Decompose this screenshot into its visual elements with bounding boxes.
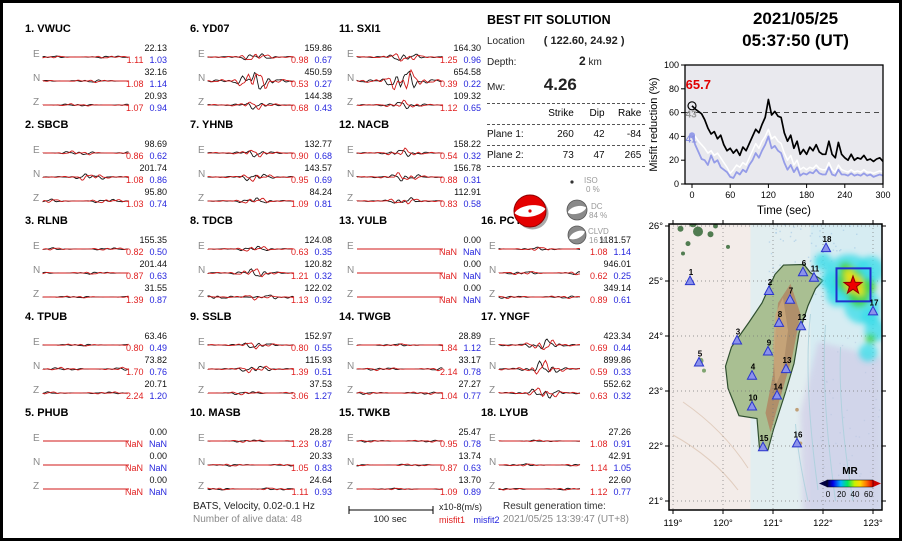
misfit1-value: 0.53 xyxy=(291,79,309,89)
misfit2-value: 0.89 xyxy=(463,487,481,497)
channel-label: N xyxy=(347,169,354,180)
misfit2-value: 0.58 xyxy=(463,199,481,209)
map-station-number: 16 xyxy=(794,430,803,439)
waveform-trace xyxy=(208,70,294,92)
waveform-trace xyxy=(208,94,294,116)
misfit1-value: NaN xyxy=(439,247,457,257)
waveform-row: E63.460.800.49 xyxy=(25,334,167,356)
map-station-number: 11 xyxy=(811,265,820,274)
chart-annotation: 41 xyxy=(686,134,698,145)
x-tick-label: 180 xyxy=(799,190,814,200)
misfit-values: 0.870.63 xyxy=(440,463,481,473)
channel-label: Z xyxy=(347,97,353,108)
waveform-trace xyxy=(357,478,443,500)
misfit2-value: 0.22 xyxy=(463,79,481,89)
dip-header: Dip xyxy=(577,108,605,119)
misfit-values: 0.860.62 xyxy=(126,151,167,161)
sea-speckle xyxy=(854,247,855,248)
sea-speckle xyxy=(812,226,813,227)
observed-trace xyxy=(208,246,294,250)
misfit-values: 0.630.35 xyxy=(291,247,332,257)
synthetic-trace xyxy=(208,343,294,349)
waveform-trace xyxy=(43,190,129,212)
sea-speckle xyxy=(837,351,838,352)
map-station-number: 4 xyxy=(751,363,756,372)
colorbar-tick-label: 20 xyxy=(837,490,846,499)
misfit-values: 0.950.78 xyxy=(440,439,481,449)
misfit1-value: 1.09 xyxy=(291,199,309,209)
misfit2-value: 0.81 xyxy=(314,199,332,209)
misfit-values: 1.390.51 xyxy=(291,367,332,377)
misfit-values: NaNNaN xyxy=(125,463,167,473)
misfit-values: NaNNaN xyxy=(439,247,481,257)
misfit2-value: 0.96 xyxy=(463,55,481,65)
amplitude-unit-label: x10-8(m/s) xyxy=(439,502,482,512)
waveform-row: N899.860.590.33 xyxy=(481,358,631,380)
misfit-values: 1.390.87 xyxy=(126,295,167,305)
plane1-strike: 260 xyxy=(542,129,574,140)
event-date: 2021/05/25 xyxy=(693,9,898,29)
synthetic-trace xyxy=(43,104,129,106)
map-x-tick-label: 123° xyxy=(863,518,883,529)
misfit2-value: NaN xyxy=(463,247,481,257)
waveform-row: Z112.910.830.58 xyxy=(339,190,481,212)
misfit-values: 1.230.87 xyxy=(291,439,332,449)
map-station-number: 13 xyxy=(783,356,792,365)
map-station-number: 8 xyxy=(778,310,783,319)
misfit1-value: 1.70 xyxy=(126,367,144,377)
colorbar-tick-label: 40 xyxy=(851,490,860,499)
observed-trace xyxy=(499,339,580,349)
amplitude-value: 132.77 xyxy=(304,139,332,149)
waveform-row: Z0.00NaNNaN xyxy=(339,286,481,308)
waveform-row: E98.690.860.62 xyxy=(25,142,167,164)
amplitude-value: 33.17 xyxy=(458,355,481,365)
divider xyxy=(487,165,645,167)
misfit2-value: 0.32 xyxy=(463,151,481,161)
map-station-number: 5 xyxy=(698,349,703,358)
waveform-row: E132.770.900.68 xyxy=(190,142,332,164)
waveform-trace xyxy=(499,478,581,500)
taiwan-station-map: 123456789101112131415161718MR0204060119°… xyxy=(643,217,902,535)
misfit1-value: 1.13 xyxy=(291,295,309,305)
misfit2-value: 0.87 xyxy=(314,439,332,449)
sea-speckle xyxy=(835,443,836,444)
waveform-trace xyxy=(208,142,294,164)
x-tick-label: 300 xyxy=(875,190,890,200)
sea-speckle xyxy=(849,428,850,429)
misfit2-value: 1.05 xyxy=(613,463,631,473)
misfit1-value: 1.84 xyxy=(440,343,458,353)
observed-trace xyxy=(208,198,294,203)
amplitude-value: 109.32 xyxy=(453,91,481,101)
channel-label: Z xyxy=(198,289,204,300)
amplitude-value: 22.13 xyxy=(144,43,167,53)
alive-data-count: Number of alive data: 48 xyxy=(193,514,302,525)
waveform-trace xyxy=(208,454,294,476)
waveform-trace xyxy=(357,334,443,356)
waveform-trace xyxy=(357,238,443,260)
amplitude-value: 155.35 xyxy=(139,235,167,245)
misfit-legend: misfit1 misfit2 xyxy=(439,515,500,525)
dc-icon xyxy=(567,200,587,220)
channel-label: Z xyxy=(347,385,353,396)
sea-speckle xyxy=(859,436,860,437)
time-scale-label: 100 sec xyxy=(347,514,433,525)
misfit1-value: 0.95 xyxy=(291,175,309,185)
sea-speckle xyxy=(775,232,776,233)
synthetic-trace xyxy=(499,271,580,274)
misfit-values: 1.130.92 xyxy=(291,295,332,305)
depth-unit: km xyxy=(588,57,601,68)
waveform-row: E0.00NaNNaN xyxy=(25,430,167,452)
channel-label: N xyxy=(198,169,205,180)
sea-speckle xyxy=(856,234,857,235)
map-station-number: 3 xyxy=(736,327,741,336)
waveform-row: E28.281.230.87 xyxy=(190,430,332,452)
map-station-number: 17 xyxy=(870,298,879,307)
x-tick-label: 120 xyxy=(761,190,776,200)
sea-speckle xyxy=(855,436,856,437)
misfit-values: 0.530.27 xyxy=(291,79,332,89)
synthetic-trace xyxy=(357,100,443,107)
waveform-row: Z20.712.241.20 xyxy=(25,382,167,404)
misfit-values: 0.690.44 xyxy=(590,343,631,353)
depth-row: Depth: 2 km xyxy=(487,54,645,68)
misfit2-value: 0.68 xyxy=(314,151,332,161)
event-datetime: 2021/05/25 05:37:50 (UT) xyxy=(693,9,898,51)
channel-label: Z xyxy=(198,385,204,396)
channel-label: N xyxy=(347,73,354,84)
channel-label: E xyxy=(33,241,40,252)
focal-mechanism-graphics: ISO 0 % DC 84 % CLVD 16 % xyxy=(487,171,645,263)
sea-speckle xyxy=(780,239,781,240)
amplitude-value: 31.55 xyxy=(144,283,167,293)
map-y-tick-label: 21° xyxy=(649,496,664,507)
misfit-values: 0.950.69 xyxy=(291,175,332,185)
waveform-row: N33.172.140.78 xyxy=(339,358,481,380)
misfit-values: 1.120.65 xyxy=(440,103,481,113)
channel-label: Z xyxy=(489,385,495,396)
channel-label: N xyxy=(33,457,40,468)
station-header: 7. YHNB xyxy=(190,119,233,131)
misfit2-value: 0.62 xyxy=(149,151,167,161)
misfit2-value: 1.12 xyxy=(463,343,481,353)
waveform-row: E22.131.111.03 xyxy=(25,46,167,68)
channel-label: Z xyxy=(33,481,39,492)
misfit-values: 1.111.03 xyxy=(127,55,167,65)
misfit1-value: 1.21 xyxy=(291,271,309,281)
misfit1-value: 0.87 xyxy=(126,271,144,281)
map-y-tick-label: 23° xyxy=(649,386,664,397)
waveform-row: N13.740.870.63 xyxy=(339,454,481,476)
y-tick-label: 80 xyxy=(669,84,679,94)
sea-speckle xyxy=(821,440,822,441)
amplitude-value: 144.38 xyxy=(304,91,332,101)
misfit1-value: NaN xyxy=(439,271,457,281)
waveform-trace xyxy=(499,454,581,476)
misfit1-value: 0.54 xyxy=(440,151,458,161)
sea-speckle xyxy=(835,246,836,247)
misfit2-value: 0.78 xyxy=(463,439,481,449)
waveform-trace xyxy=(43,262,129,284)
station-header: 2. SBCB xyxy=(25,119,68,131)
circle-shape xyxy=(866,334,876,344)
map-station-number: 15 xyxy=(760,434,769,443)
sea-speckle xyxy=(810,261,811,262)
amplitude-value: 27.26 xyxy=(608,427,631,437)
misfit1-value: 0.68 xyxy=(291,103,309,113)
misfit2-value: 0.44 xyxy=(613,343,631,353)
waveform-trace xyxy=(208,238,294,260)
station-header: 11. SXI1 xyxy=(339,23,381,35)
y-tick-label: 0 xyxy=(674,179,679,189)
channel-label: E xyxy=(347,49,354,60)
waveform-row: Z20.931.070.94 xyxy=(25,94,167,116)
x-tick-label: 0 xyxy=(689,190,694,200)
misfit1-value: 1.04 xyxy=(440,391,458,401)
misfit1-value: 0.82 xyxy=(126,247,144,257)
misfit-values: 1.040.77 xyxy=(440,391,481,401)
mw-label: Mw: xyxy=(487,82,541,93)
circle-shape xyxy=(859,344,877,362)
sea-speckle xyxy=(810,235,811,236)
waveform-row: N450.590.530.27 xyxy=(190,70,332,92)
misfit1-value: 1.39 xyxy=(126,295,144,305)
plane2-label: Plane 2: xyxy=(487,150,539,161)
map-station-number: 1 xyxy=(689,268,694,277)
plane1-dip: 42 xyxy=(577,129,605,140)
best-fit-solution-panel: BEST FIT SOLUTION Location ( 122.60, 24.… xyxy=(487,13,645,268)
misfit1-value: 1.08 xyxy=(590,439,608,449)
channel-label: Z xyxy=(33,97,39,108)
green-island xyxy=(795,408,799,412)
waveform-trace xyxy=(357,286,443,308)
sea-speckle xyxy=(843,230,844,231)
channel-label: E xyxy=(33,337,40,348)
waveform-trace xyxy=(357,454,443,476)
sea-speckle xyxy=(847,410,848,411)
misfit1-value: 0.39 xyxy=(440,79,458,89)
misfit2-value: 0.67 xyxy=(314,55,332,65)
waveform-trace xyxy=(43,382,129,404)
misfit-values: 1.080.86 xyxy=(126,175,167,185)
station-header: 4. TPUB xyxy=(25,311,67,323)
misfit2-value: 0.55 xyxy=(314,343,332,353)
misfit-values: 0.980.67 xyxy=(291,55,332,65)
observed-trace xyxy=(499,389,580,398)
amplitude-value: 115.93 xyxy=(305,355,332,365)
waveform-trace xyxy=(208,334,294,356)
waveform-trace xyxy=(208,382,294,404)
misfit2-value: 0.33 xyxy=(613,367,631,377)
synthetic-trace xyxy=(357,173,443,180)
amplitude-value: 654.58 xyxy=(453,67,481,77)
waveform-row: N156.780.880.31 xyxy=(339,166,481,188)
misfit1-value: NaN xyxy=(125,487,143,497)
waveform-row: Z22.601.120.77 xyxy=(481,478,631,500)
y-tick-label: 60 xyxy=(669,108,679,118)
sea-speckle xyxy=(811,243,812,244)
waveform-row: N32.161.081.14 xyxy=(25,70,167,92)
channel-label: E xyxy=(347,433,354,444)
amplitude-value: 24.64 xyxy=(309,475,332,485)
channel-label: N xyxy=(33,169,40,180)
sea-speckle xyxy=(840,432,841,433)
waveform-row: N120.821.210.32 xyxy=(190,262,332,284)
amplitude-value: 37.53 xyxy=(309,379,332,389)
amplitude-value: 42.91 xyxy=(608,451,631,461)
misfit2-value: 0.25 xyxy=(613,271,631,281)
waveform-row: E155.350.820.50 xyxy=(25,238,167,260)
misfit2-value: 0.32 xyxy=(314,271,332,281)
station-header: 13. YULB xyxy=(339,215,387,227)
misfit-values: 1.110.93 xyxy=(292,487,332,497)
map-x-tick-label: 122° xyxy=(813,518,833,529)
misfit-values: 0.900.68 xyxy=(291,151,332,161)
y-tick-label: 20 xyxy=(669,155,679,165)
sea-speckle xyxy=(836,250,837,251)
amplitude-value: 0.00 xyxy=(149,427,167,437)
map-y-tick-label: 26° xyxy=(649,221,664,232)
sea-speckle xyxy=(876,399,877,400)
synthetic-trace xyxy=(499,340,580,350)
misfit-values: 0.870.63 xyxy=(126,271,167,281)
chart-annotation: 43 xyxy=(686,109,698,120)
misfit2-value: 0.77 xyxy=(463,391,481,401)
y-tick-label: 40 xyxy=(669,131,679,141)
misfit2-value: 0.87 xyxy=(149,295,167,305)
plane2-row: Plane 2: 73 47 265 xyxy=(487,148,645,163)
map-y-tick-label: 22° xyxy=(649,441,664,452)
misfit2-value: NaN xyxy=(149,439,167,449)
channel-label: E xyxy=(198,49,205,60)
plane2-dip: 47 xyxy=(577,150,605,161)
synthetic-trace xyxy=(208,440,294,442)
waveform-row: Z552.620.630.32 xyxy=(481,382,631,404)
iso-label: ISO xyxy=(584,176,598,185)
observed-trace xyxy=(357,71,443,87)
dc-pct: 84 % xyxy=(589,211,607,220)
waveform-trace xyxy=(43,478,129,500)
channel-label: Z xyxy=(198,97,204,108)
amplitude-value: 0.00 xyxy=(149,451,167,461)
waveform-trace xyxy=(208,46,294,68)
sea-speckle xyxy=(865,372,866,373)
misfit1-value: 0.80 xyxy=(126,343,144,353)
sea-speckle xyxy=(874,407,875,408)
chart-plot-background xyxy=(685,65,883,184)
waveform-row: E164.301.250.96 xyxy=(339,46,481,68)
misfit-values: 0.800.49 xyxy=(126,343,167,353)
amplitude-value: 20.71 xyxy=(144,379,167,389)
waveform-row: Z95.801.030.74 xyxy=(25,190,167,212)
sea-speckle xyxy=(783,240,784,241)
misfit2-value: 0.93 xyxy=(314,487,332,497)
misfit-values: 0.880.31 xyxy=(440,175,481,185)
synthetic-trace xyxy=(208,175,294,182)
channel-label: E xyxy=(347,145,354,156)
amplitude-value: 0.00 xyxy=(463,259,481,269)
channel-label: N xyxy=(489,361,496,372)
waveform-trace xyxy=(357,358,443,380)
misfit2-value: 0.51 xyxy=(314,367,332,377)
station-header: 9. SSLB xyxy=(190,311,232,323)
station-header: 12. NACB xyxy=(339,119,389,131)
waveform-row: E423.340.690.44 xyxy=(481,334,631,356)
station-header: 14. TWGB xyxy=(339,311,391,323)
map-station-number: 7 xyxy=(789,287,794,296)
channel-label: E xyxy=(33,433,40,444)
amplitude-value: 27.27 xyxy=(458,379,481,389)
data-processing-info: BATS, Velocity, 0.02-0.1 Hz xyxy=(193,501,315,512)
misfit1-value: 0.83 xyxy=(440,199,458,209)
misfit1-value: 1.39 xyxy=(291,367,309,377)
x-tick-label: 240 xyxy=(837,190,852,200)
misfit2-value: 1.14 xyxy=(149,79,167,89)
sea-speckle xyxy=(864,420,865,421)
amplitude-value: 84.24 xyxy=(309,187,332,197)
sea-speckle xyxy=(843,417,844,418)
map-station-number: 2 xyxy=(768,278,773,287)
misfit2-value: 1.03 xyxy=(149,55,167,65)
waveform-trace xyxy=(43,94,129,116)
misfit2-value: 0.63 xyxy=(463,463,481,473)
misfit-values: 0.800.55 xyxy=(291,343,332,353)
amplitude-value: 20.33 xyxy=(309,451,332,461)
amplitude-value: 201.44 xyxy=(139,259,167,269)
misfit-values: 1.080.91 xyxy=(590,439,631,449)
misfit1-value: 0.88 xyxy=(440,175,458,185)
waveform-row: E159.860.980.67 xyxy=(190,46,332,68)
sea-speckle xyxy=(800,228,801,229)
event-time: 05:37:50 (UT) xyxy=(693,31,898,51)
waveform-trace xyxy=(357,430,443,452)
channel-label: Z xyxy=(347,289,353,300)
misfit1-value: 1.05 xyxy=(291,463,309,473)
location-label: Location xyxy=(487,36,541,47)
channel-label: Z xyxy=(198,481,204,492)
sea-speckle xyxy=(823,474,824,475)
channel-label: Z xyxy=(198,193,204,204)
coastal-islet xyxy=(708,231,714,237)
waveform-trace xyxy=(43,334,129,356)
amplitude-value: 152.97 xyxy=(304,331,332,341)
iso-pct: 0 % xyxy=(586,185,600,194)
misfit1-value: 1.07 xyxy=(126,103,144,113)
colorbar-tick-label: 0 xyxy=(826,490,831,499)
misfit1-value: 0.63 xyxy=(590,391,608,401)
map-canvas: 123456789101112131415161718MR0204060 xyxy=(669,215,902,512)
waveform-trace xyxy=(357,382,443,404)
misfit1-value: 1.25 xyxy=(440,55,458,65)
station-header: 10. MASB xyxy=(190,407,241,419)
misfit2-value: 0.94 xyxy=(149,103,167,113)
sea-speckle xyxy=(840,463,841,464)
misfit-values: 0.540.32 xyxy=(440,151,481,161)
y-axis-label: Misfit reduction (%) xyxy=(648,77,660,171)
sea-speckle xyxy=(819,230,820,231)
misfit-reduction-chart: 02040608010006012018024030065.74341Misfi… xyxy=(643,55,902,219)
channel-label: N xyxy=(347,361,354,372)
misfit2-value: 0.78 xyxy=(463,367,481,377)
amplitude-value: 32.16 xyxy=(144,67,167,77)
synthetic-trace xyxy=(208,269,294,277)
waveform-row: Z0.00NaNNaN xyxy=(25,478,167,500)
sea-speckle xyxy=(794,241,795,242)
waveform-row: N20.331.050.83 xyxy=(190,454,332,476)
sea-speckle xyxy=(790,236,791,237)
